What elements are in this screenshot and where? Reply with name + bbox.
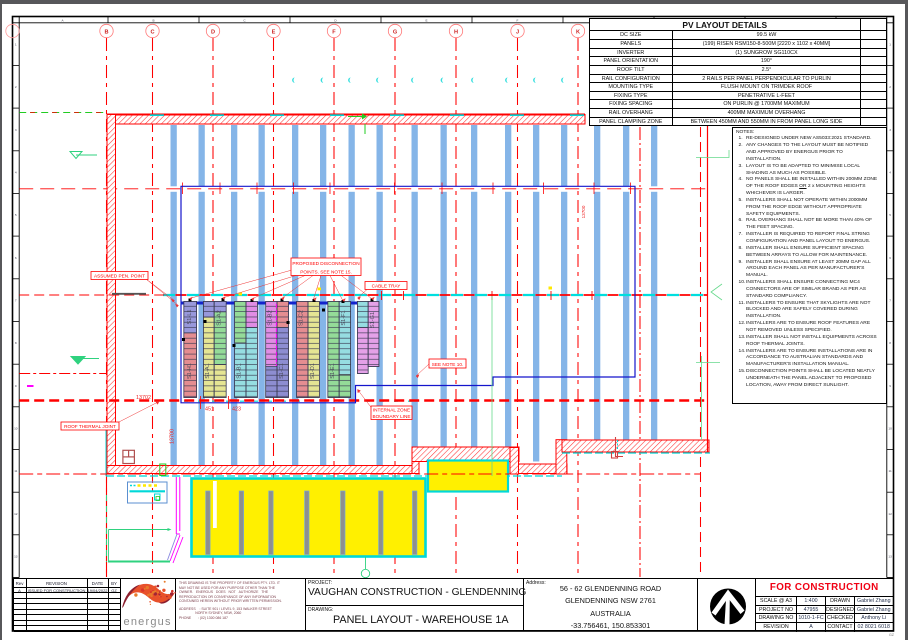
svg-text:SEE NOTE 10.: SEE NOTE 10.	[432, 362, 464, 367]
svg-text:ASSUMED PEN. POINT: ASSUMED PEN. POINT	[94, 274, 145, 279]
svg-text:7: 7	[15, 299, 17, 303]
svg-text:J: J	[516, 29, 519, 35]
svg-text:2: 2	[889, 85, 891, 89]
svg-text:F: F	[517, 18, 519, 22]
svg-text:INTERNAL ZONE: INTERNAL ZONE	[373, 407, 410, 412]
svg-text:10: 10	[888, 427, 892, 431]
svg-text:C: C	[150, 29, 154, 35]
svg-text:10: 10	[14, 427, 18, 431]
svg-text:9: 9	[15, 384, 17, 388]
svg-text:S1-B1: S1-B1	[237, 363, 243, 379]
svg-text:D: D	[211, 29, 215, 35]
svg-text:S1-D1: S1-D1	[310, 363, 316, 379]
svg-text:6: 6	[15, 256, 17, 260]
svg-text:C: C	[243, 18, 246, 22]
svg-text:G: G	[393, 29, 397, 35]
svg-text:S1-E1: S1-E1	[330, 363, 336, 379]
svg-text:5: 5	[889, 213, 891, 217]
svg-text:423: 423	[232, 407, 241, 413]
svg-text:7: 7	[889, 299, 891, 303]
svg-text:13: 13	[888, 555, 892, 559]
svg-text:ROOF THERMAL JOINT: ROOF THERMAL JOINT	[64, 424, 116, 429]
svg-text:S1-C2: S1-C2	[299, 310, 305, 326]
svg-text:S1-H1: S1-H1	[187, 363, 193, 379]
svg-text:POINTS. SEE NOTE 15.: POINTS. SEE NOTE 15.	[300, 270, 352, 275]
svg-text:451: 451	[205, 407, 214, 413]
svg-text:A: A	[61, 18, 64, 22]
svg-text:E: E	[272, 29, 276, 35]
svg-text:11: 11	[888, 469, 891, 473]
svg-text:S1-F1: S1-F1	[341, 310, 347, 325]
svg-text:B: B	[104, 29, 108, 35]
svg-text:12: 12	[14, 512, 18, 516]
svg-text:F: F	[332, 29, 336, 35]
svg-text:PROPOSED DISCONNECTION: PROPOSED DISCONNECTION	[292, 261, 359, 266]
svg-text:4: 4	[889, 170, 891, 174]
svg-text:S1-A1: S1-A1	[205, 363, 211, 379]
svg-text:CABLE TRAY: CABLE TRAY	[372, 284, 402, 289]
svg-text:9: 9	[889, 384, 891, 388]
svg-text:E: E	[425, 18, 427, 22]
svg-text:D: D	[334, 18, 337, 22]
svg-text:S1-B2: S1-B2	[268, 310, 274, 326]
svg-text:1: 1	[15, 42, 17, 46]
svg-text:1: 1	[889, 42, 891, 46]
svg-text:S1-G1: S1-G1	[370, 312, 376, 328]
svg-text:13700: 13700	[170, 429, 176, 444]
svg-text:S1-A2: S1-A2	[217, 310, 223, 326]
svg-text:8: 8	[15, 341, 17, 345]
svg-text:8: 8	[889, 341, 891, 345]
svg-text:11: 11	[14, 469, 17, 473]
svg-text:13702: 13702	[136, 395, 151, 401]
svg-text:B: B	[152, 18, 154, 22]
svg-text:13700: 13700	[581, 205, 586, 218]
svg-text:13: 13	[14, 555, 18, 559]
svg-text:12: 12	[888, 512, 892, 516]
svg-text:K: K	[576, 29, 580, 35]
svg-text:S1-L1: S1-L1	[187, 310, 193, 325]
svg-text:3: 3	[15, 128, 17, 132]
svg-text:4: 4	[15, 170, 17, 174]
svg-text:H: H	[454, 29, 458, 35]
svg-text:5: 5	[15, 213, 17, 217]
svg-text:GZ: GZ	[889, 633, 895, 637]
svg-text:3: 3	[889, 128, 891, 132]
svg-text:6: 6	[889, 256, 891, 260]
svg-text:S1-C1: S1-C1	[279, 363, 285, 379]
svg-text:2: 2	[15, 85, 17, 89]
svg-text:BOUNDARY LINE: BOUNDARY LINE	[372, 414, 410, 419]
